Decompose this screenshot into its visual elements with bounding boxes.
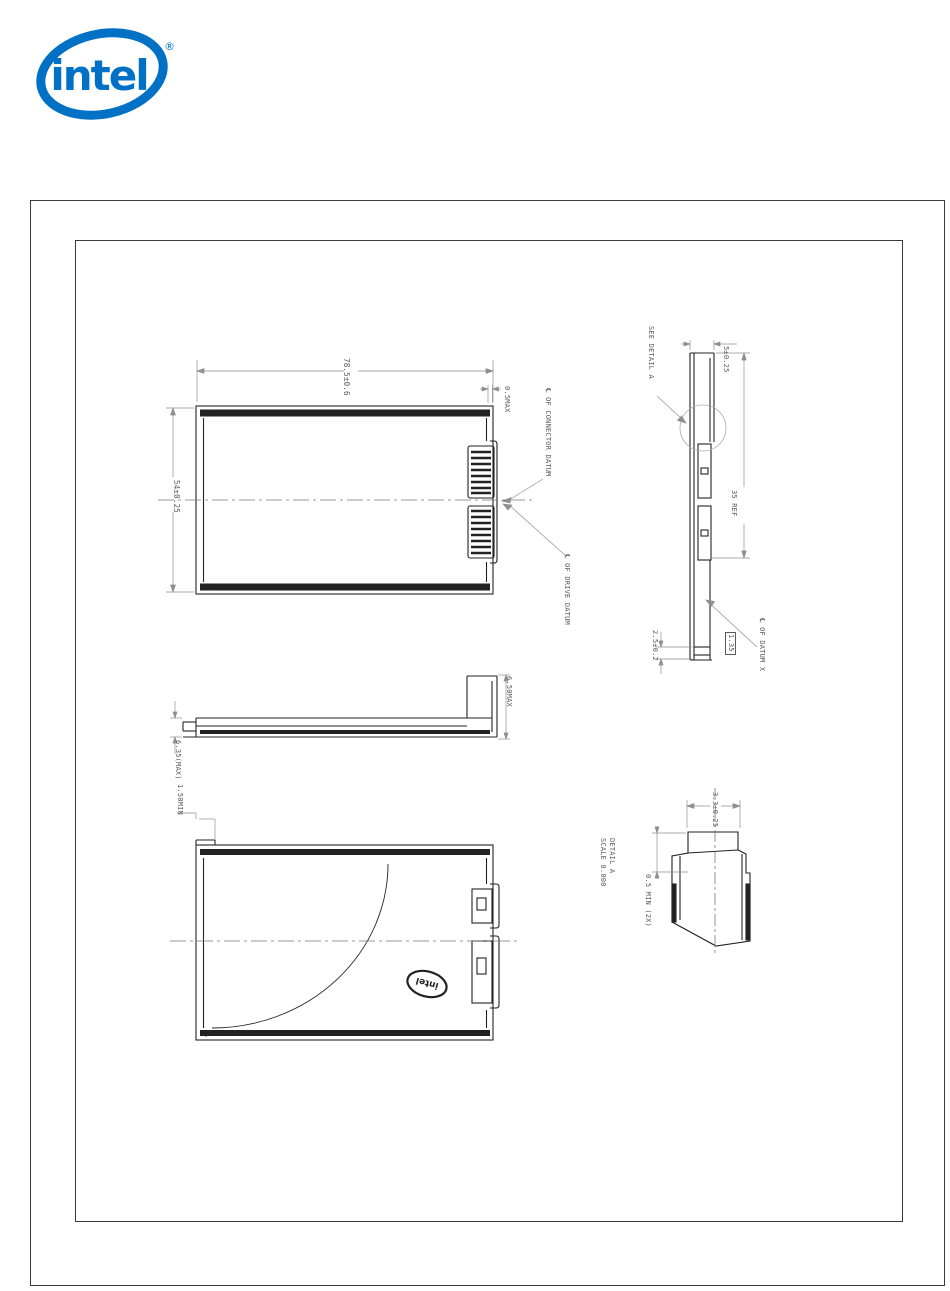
dim-basic-boxed: 1.35 (725, 632, 736, 655)
connector-pins-upper (471, 452, 491, 493)
profile-view (183, 676, 497, 737)
detail-a-title-block: DETAIL A SCALE 8.000 (598, 838, 616, 887)
dim-profile-right-max: 6.50MAX (505, 676, 513, 707)
dim-ref: 35 REF (730, 490, 738, 517)
dim-detail-min: 0.5 MIN (2X) (644, 874, 652, 927)
detail-a-view (672, 832, 750, 946)
note-connector-datum: ℄ OF CONNECTOR DATUM (544, 388, 552, 477)
detail-a-dimensions (652, 788, 740, 953)
detail-a-title: DETAIL A (607, 838, 616, 887)
dim-detail-width: 3.3±0.25 (711, 792, 719, 827)
bottom-view: intel (196, 840, 499, 1040)
bottom-view-dimensions (170, 813, 520, 941)
dim-profile-left-max: 6.35(MAX) (174, 740, 182, 780)
side-view (690, 353, 714, 660)
dim-pad-offset: 2.5±0.2 (651, 630, 659, 661)
note-see-detail-a: SEE DETAIL A (647, 326, 655, 379)
dim-overall-height: 54±0.25 (172, 480, 181, 513)
drive-label-logo-text: intel (415, 975, 440, 991)
detail-a-scale: SCALE 8.000 (598, 838, 607, 887)
side-view-dimensions (656, 340, 757, 674)
dim-overall-width: 78.5±0.6 (342, 358, 351, 396)
drive-label-logo: intel (404, 967, 449, 1002)
label-area-arc (212, 864, 388, 1028)
note-datum-x: ℄ OF DATUM X (758, 618, 766, 671)
dim-thickness: 5±0.25 (722, 346, 730, 373)
dim-lip-max: 0.5MAX (503, 386, 511, 413)
drawing-canvas: intel (0, 0, 950, 1291)
connector-pins-lower (471, 511, 491, 553)
dim-step-min: 1.50MIN (176, 784, 184, 815)
datasheet-page: intel ® (0, 0, 950, 1291)
note-drive-datum: ℄ OF DRIVE DATUM (563, 554, 571, 625)
profile-view-dimensions (170, 675, 510, 754)
